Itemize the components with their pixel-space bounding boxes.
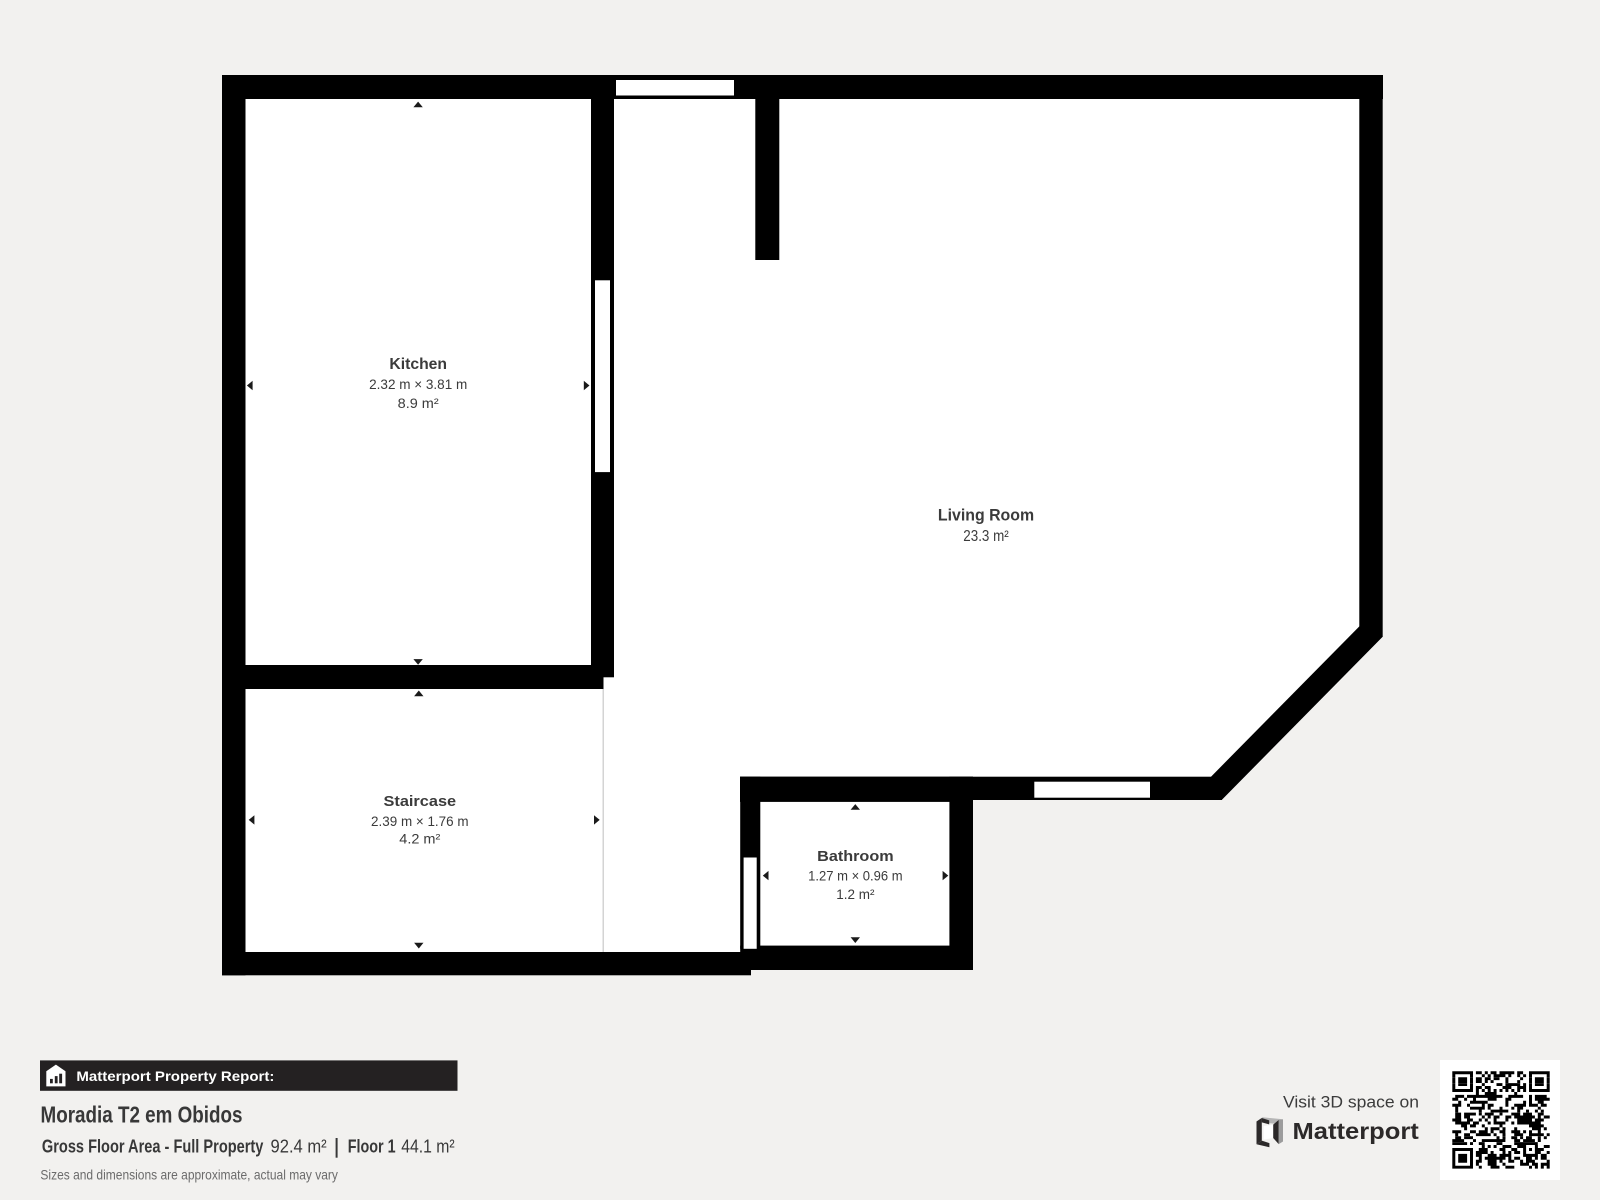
svg-text:4.2 m²: 4.2 m² — [399, 830, 440, 846]
svg-text:2.39 m × 1.76 m: 2.39 m × 1.76 m — [371, 813, 469, 829]
svg-text:Kitchen: Kitchen — [389, 356, 447, 373]
svg-text:Floor 1: Floor 1 — [348, 1135, 396, 1156]
svg-text:Visit 3D space on: Visit 3D space on — [1283, 1092, 1419, 1111]
svg-text:Bathroom: Bathroom — [817, 848, 894, 865]
svg-text:Matterport: Matterport — [1293, 1118, 1420, 1144]
svg-text:2.32 m × 3.81 m: 2.32 m × 3.81 m — [369, 376, 467, 392]
svg-text:Staircase: Staircase — [384, 793, 457, 810]
svg-text:Sizes and dimensions are appro: Sizes and dimensions are approximate, ac… — [40, 1166, 338, 1182]
svg-text:Gross Floor Area - Full Proper: Gross Floor Area - Full Property — [42, 1135, 264, 1156]
svg-text:Matterport Property Report:: Matterport Property Report: — [76, 1068, 274, 1084]
svg-text:23.3 m²: 23.3 m² — [963, 528, 1008, 545]
svg-text:1.2 m²: 1.2 m² — [836, 887, 875, 902]
svg-text:44.1 m²: 44.1 m² — [401, 1135, 454, 1156]
svg-text:8.9 m²: 8.9 m² — [398, 395, 439, 411]
svg-text:92.4 m²: 92.4 m² — [271, 1135, 327, 1156]
svg-text:Moradia T2 em Obidos: Moradia T2 em Obidos — [41, 1102, 243, 1128]
svg-text:1.27 m × 0.96 m: 1.27 m × 0.96 m — [808, 869, 903, 884]
svg-text:Living Room: Living Room — [938, 506, 1034, 525]
